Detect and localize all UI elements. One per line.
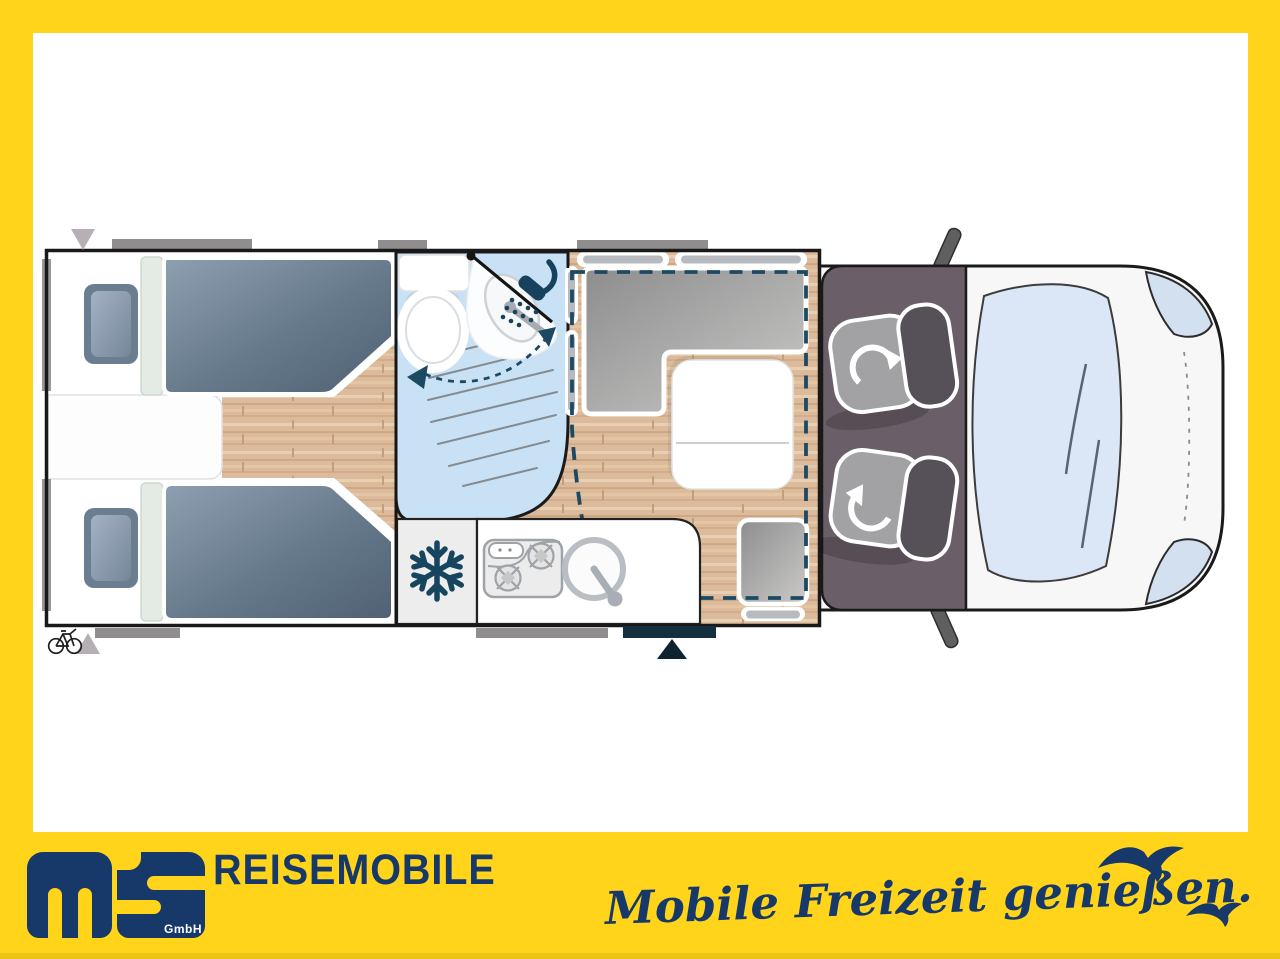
motorhome-floorplan bbox=[40, 218, 1240, 670]
aisle-floor bbox=[222, 397, 396, 478]
folding-table bbox=[672, 360, 793, 489]
bathroom bbox=[396, 252, 568, 523]
kitchen bbox=[397, 519, 700, 624]
pillow bbox=[84, 508, 138, 588]
side-bench bbox=[739, 520, 807, 621]
toilet bbox=[397, 255, 469, 373]
windshield bbox=[972, 284, 1121, 581]
seagull-icon bbox=[1186, 903, 1242, 927]
banner-bottom-edge bbox=[0, 953, 1280, 959]
entry-door bbox=[623, 626, 716, 638]
rear-marker-icon bbox=[71, 229, 95, 250]
dealer-floorplan-advert: GmbH REISEMOBILE Mobile Freizeit genieße… bbox=[0, 0, 1280, 959]
pillow bbox=[84, 284, 138, 364]
two-burner-hob-icon bbox=[484, 540, 562, 597]
entry-arrow-icon bbox=[657, 639, 687, 659]
bike-rack-icon bbox=[49, 629, 82, 653]
center-step bbox=[48, 395, 222, 479]
seagull-icon bbox=[1098, 846, 1184, 882]
dealer-banner: GmbH REISEMOBILE Mobile Freizeit genieße… bbox=[0, 832, 1280, 959]
seagull-icons bbox=[0, 832, 1280, 959]
